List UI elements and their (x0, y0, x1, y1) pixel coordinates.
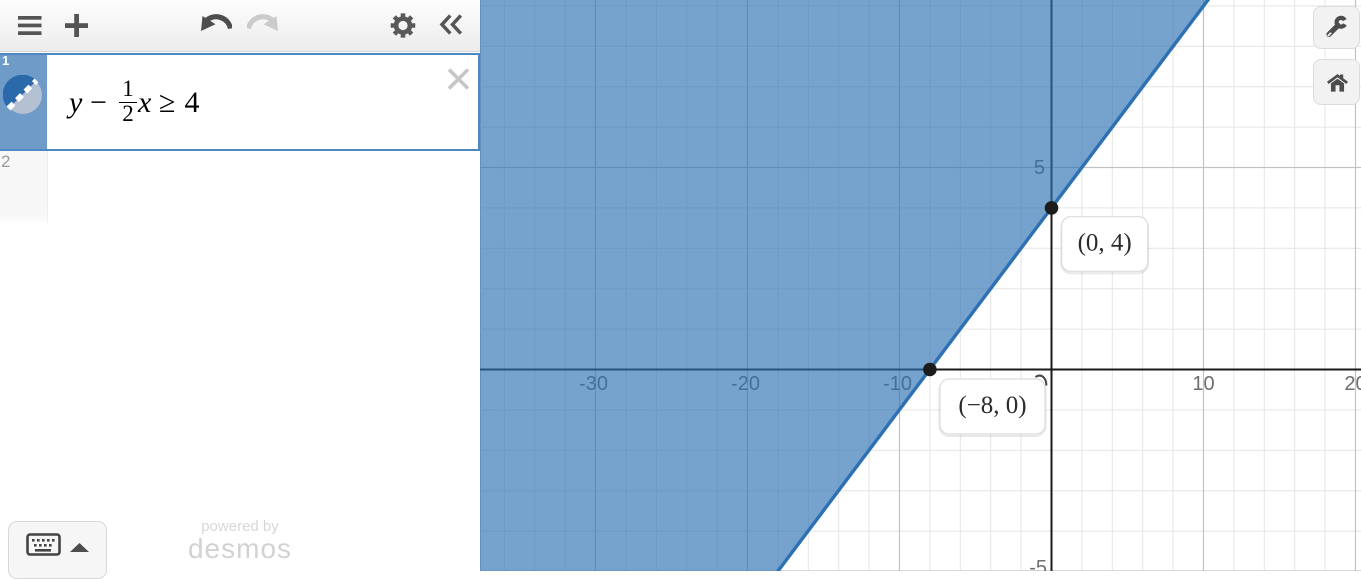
svg-text:-5: -5 (1029, 557, 1047, 571)
svg-text:(0, 4): (0, 4) (1078, 230, 1132, 257)
svg-text:10: 10 (1192, 373, 1214, 395)
svg-text:(−8, 0): (−8, 0) (958, 392, 1026, 419)
svg-text:20: 20 (1344, 373, 1361, 395)
